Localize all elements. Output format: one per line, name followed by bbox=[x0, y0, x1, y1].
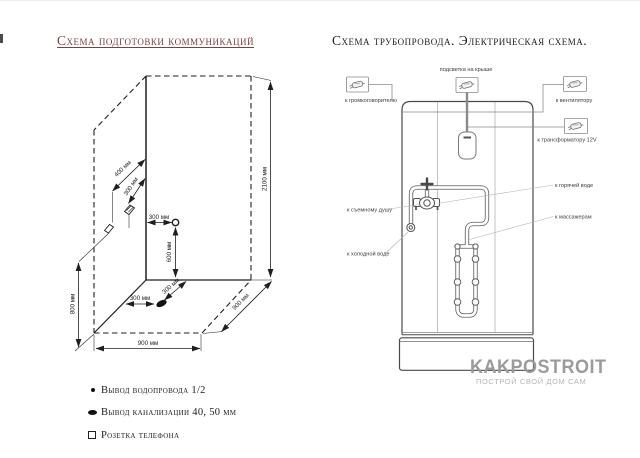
dim-label-900-bottom: 900 мм bbox=[138, 340, 159, 347]
legend-label: Розетка телефона bbox=[101, 430, 179, 441]
massagers-label: к массажерам bbox=[555, 215, 592, 221]
dim-label-300-socket: 300 мм bbox=[123, 176, 140, 197]
faucet-body bbox=[420, 197, 435, 209]
transformer-label: к трансформатору 12V bbox=[537, 138, 597, 144]
left-diagram-title: Схема подготовки коммуникаций bbox=[57, 33, 254, 49]
room-corner-solid-edges bbox=[94, 76, 251, 333]
hand-shower-label: к съемному душу bbox=[347, 208, 392, 214]
callout-labels: подсветка на крыше к громкоговорителю к … bbox=[345, 67, 597, 258]
legend: Вывод водопровода 1/2 Вывод канализации … bbox=[85, 383, 315, 451]
legend-label: Вывод водопровода 1/2 bbox=[101, 385, 206, 396]
dim-label-400-socket: 400 мм bbox=[113, 159, 133, 178]
ceiling-light-fixture bbox=[459, 132, 477, 159]
speaker-label: к громкоговорителю bbox=[345, 98, 397, 104]
hot-water-label: к горячей воде bbox=[555, 182, 593, 189]
dimension-labels: 2100 мм 800 мм 900 мм 900 мм 600 мм 300 … bbox=[70, 159, 269, 347]
dim-label-300-floor: 300 мм bbox=[130, 295, 151, 302]
legend-item-phone: Розетка телефона bbox=[85, 428, 315, 442]
watermark: KAKPOSTROIT ПОСТРОЙ СВОЙ ДОМ САМ bbox=[470, 357, 607, 386]
sewer-outlet-icon bbox=[85, 410, 101, 415]
legend-item-sewer: Вывод канализации 40, 50 мм bbox=[85, 406, 315, 420]
cold-water-leader bbox=[386, 231, 410, 254]
watermark-brand: KAKPOSTROIT bbox=[470, 357, 607, 376]
scan-artifact-mark bbox=[0, 34, 3, 43]
massagers-leader bbox=[470, 217, 554, 240]
phone-socket-symbol bbox=[105, 225, 114, 234]
dimension-lines bbox=[79, 82, 272, 349]
roof-light-label: подсветка на крыше bbox=[440, 67, 493, 73]
cold-water-label: к холодной воде bbox=[347, 251, 389, 258]
right-diagram-title: Схема трубопровода. Электрическая схема. bbox=[332, 33, 587, 49]
legend-item-water: Вывод водопровода 1/2 bbox=[85, 383, 315, 397]
room-corner-dashed-edges bbox=[94, 76, 251, 333]
sewer-outlet-symbol bbox=[155, 298, 168, 308]
hose-outlet-ring bbox=[407, 224, 415, 232]
dim-label-300-wall: 300 мм bbox=[149, 214, 170, 221]
water-outlet-icon bbox=[85, 388, 101, 392]
scanned-diagram-page: Схема подготовки коммуникаций Схема труб… bbox=[0, 0, 640, 458]
dim-900-right bbox=[222, 282, 272, 332]
water-outlet-symbol bbox=[172, 219, 178, 225]
communications-prep-diagram: 2100 мм 800 мм 900 мм 900 мм 600 мм 300 … bbox=[55, 59, 310, 381]
phone-socket-icon bbox=[85, 431, 101, 439]
power-socket-symbol bbox=[125, 205, 135, 215]
dim-label-2100: 2100 мм bbox=[262, 167, 269, 191]
extension-lines bbox=[75, 77, 272, 352]
watermark-slogan: ПОСТРОЙ СВОЙ ДОМ САМ bbox=[476, 378, 607, 386]
pipeline-electrical-diagram: подсветка на крыше к громкоговорителю к … bbox=[330, 61, 630, 401]
dim-label-800: 800 мм bbox=[70, 294, 77, 315]
dim-label-900-right: 900 мм bbox=[231, 292, 250, 311]
fan-label: к вентилятору bbox=[556, 98, 593, 104]
fan-wire bbox=[402, 85, 564, 113]
legend-label: Вывод канализации 40, 50 мм bbox=[101, 407, 236, 418]
dim-label-600: 600 мм bbox=[166, 242, 173, 263]
